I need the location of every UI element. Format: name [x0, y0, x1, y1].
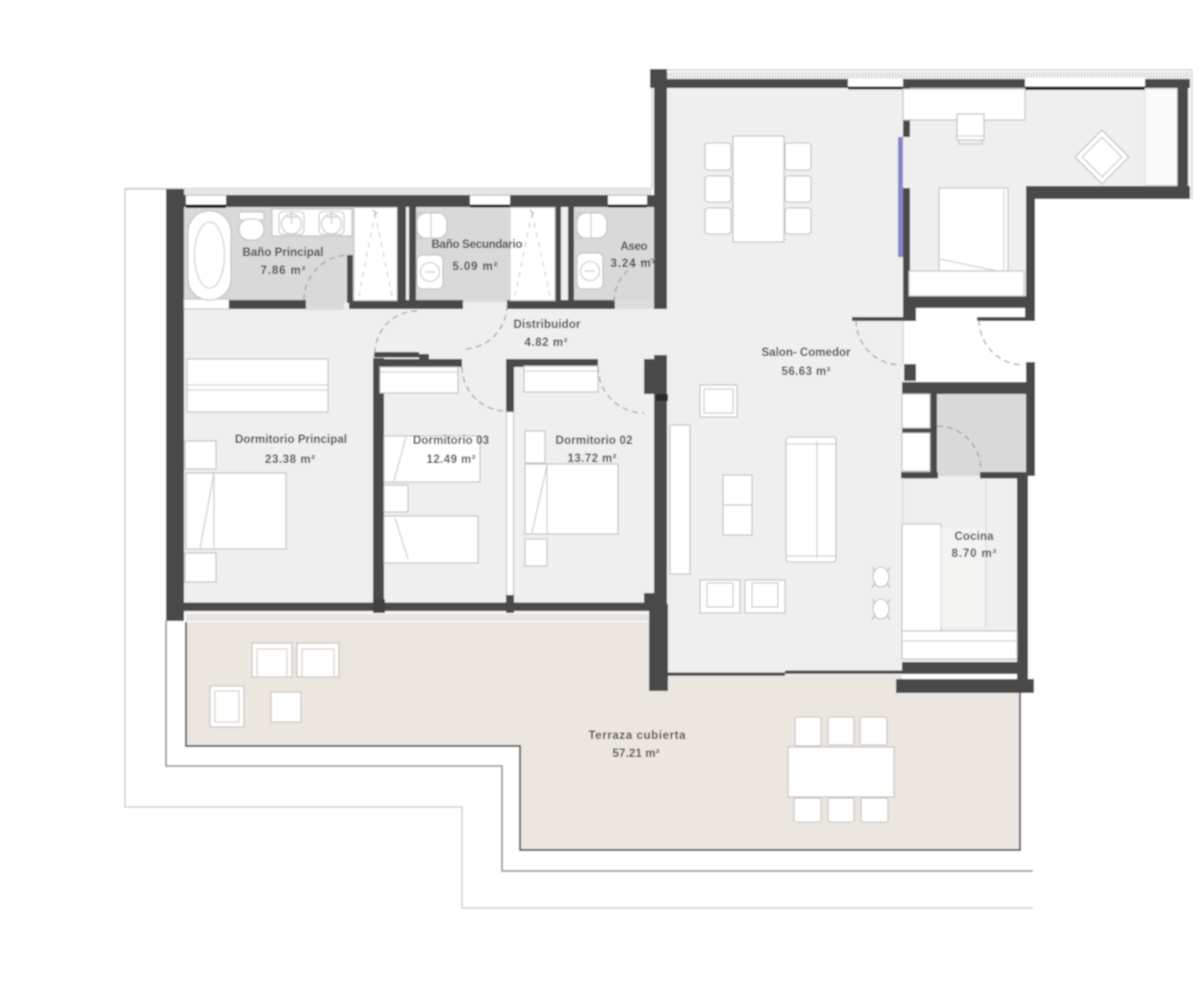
svg-text:3.24 m²: 3.24 m²	[611, 258, 656, 270]
svg-text:Salon- Comedor: Salon- Comedor	[762, 347, 852, 359]
svg-text:56.63 m²: 56.63 m²	[782, 366, 831, 378]
svg-text:5.09 m²: 5.09 m²	[453, 261, 498, 273]
svg-text:Distribuidor: Distribuidor	[514, 319, 582, 331]
svg-text:Dormitorio 02: Dormitorio 02	[556, 435, 633, 447]
svg-text:8.70 m²: 8.70 m²	[952, 548, 997, 560]
svg-text:Cocina: Cocina	[955, 531, 995, 543]
svg-text:7.86 m²: 7.86 m²	[261, 265, 306, 277]
svg-text:13.72 m²: 13.72 m²	[568, 453, 617, 465]
svg-text:Dormitorio 03: Dormitorio 03	[413, 435, 489, 447]
svg-text:Baño Secundario: Baño Secundario	[432, 239, 523, 251]
svg-text:57.21 m²: 57.21 m²	[613, 748, 660, 760]
svg-text:Terraza cubierta: Terraza cubierta	[589, 730, 687, 742]
svg-text:4.82 m²: 4.82 m²	[525, 337, 568, 349]
svg-text:Baño Principal: Baño Principal	[243, 247, 324, 259]
svg-text:Dormitorio Principal: Dormitorio Principal	[235, 434, 347, 446]
svg-text:12.49 m²: 12.49 m²	[427, 454, 476, 466]
svg-text:23.38 m²: 23.38 m²	[265, 454, 315, 466]
svg-text:Aseo: Aseo	[621, 241, 648, 253]
